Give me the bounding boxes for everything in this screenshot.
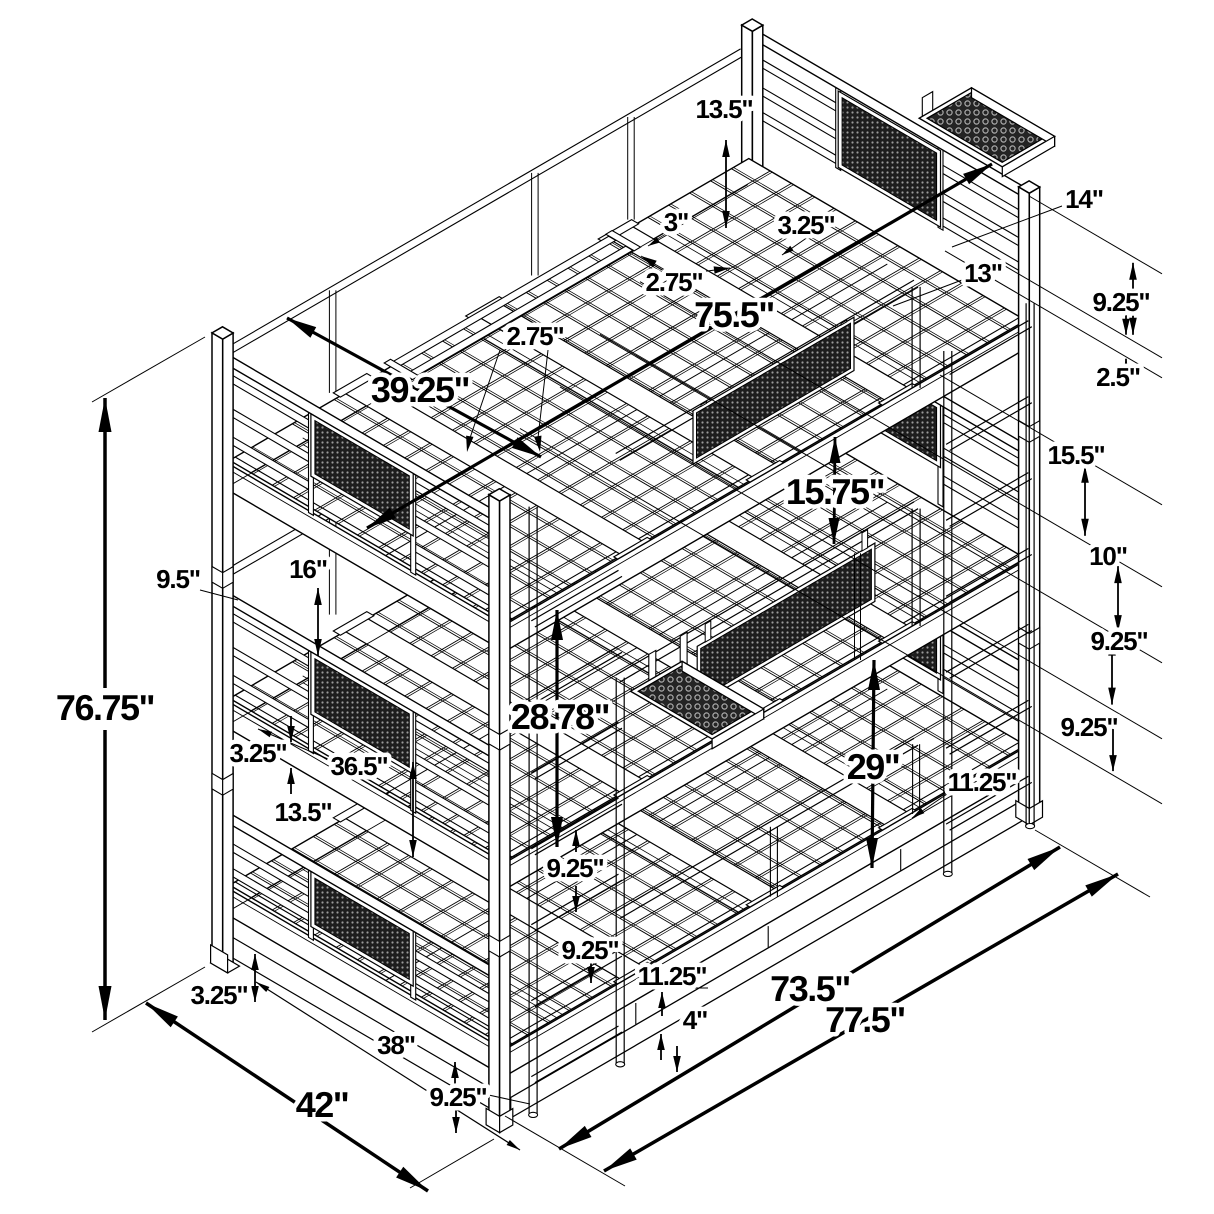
svg-text:36.5": 36.5": [331, 751, 388, 781]
svg-text:9.25": 9.25": [562, 935, 619, 965]
svg-text:9.25": 9.25": [1093, 287, 1150, 317]
svg-text:11.25": 11.25": [638, 961, 707, 991]
svg-text:3": 3": [664, 207, 688, 237]
svg-text:2.75": 2.75": [646, 267, 703, 297]
svg-text:77.5": 77.5": [825, 999, 905, 1040]
svg-text:9.25": 9.25": [547, 853, 604, 883]
svg-text:9.25": 9.25": [430, 1082, 487, 1112]
svg-text:15.5": 15.5": [1048, 440, 1105, 470]
svg-text:9.25": 9.25": [1091, 626, 1148, 656]
svg-text:2.5": 2.5": [1096, 362, 1140, 392]
svg-text:13": 13": [964, 258, 1002, 288]
svg-text:76.75": 76.75": [56, 687, 154, 728]
svg-text:9.5": 9.5": [156, 564, 200, 594]
svg-text:42": 42": [296, 1084, 349, 1125]
svg-text:75.5": 75.5": [694, 294, 774, 335]
svg-text:29": 29": [847, 746, 900, 787]
svg-text:38": 38": [377, 1030, 415, 1060]
svg-text:2.75": 2.75": [507, 321, 564, 351]
svg-text:10": 10": [1089, 541, 1127, 571]
svg-text:39.25": 39.25": [371, 369, 469, 410]
svg-text:3.25": 3.25": [778, 210, 835, 240]
svg-text:3.25": 3.25": [230, 738, 287, 768]
svg-text:28.78": 28.78": [511, 696, 609, 737]
svg-text:4": 4": [683, 1005, 707, 1035]
svg-text:15.75": 15.75": [786, 471, 884, 512]
svg-text:9.25": 9.25": [1061, 712, 1118, 742]
svg-text:3.25": 3.25": [191, 980, 248, 1010]
svg-text:13.5": 13.5": [275, 797, 332, 827]
svg-text:11.25": 11.25": [948, 767, 1017, 797]
svg-text:14": 14": [1065, 184, 1103, 214]
svg-text:13.5": 13.5": [696, 94, 753, 124]
svg-text:16": 16": [289, 554, 327, 584]
